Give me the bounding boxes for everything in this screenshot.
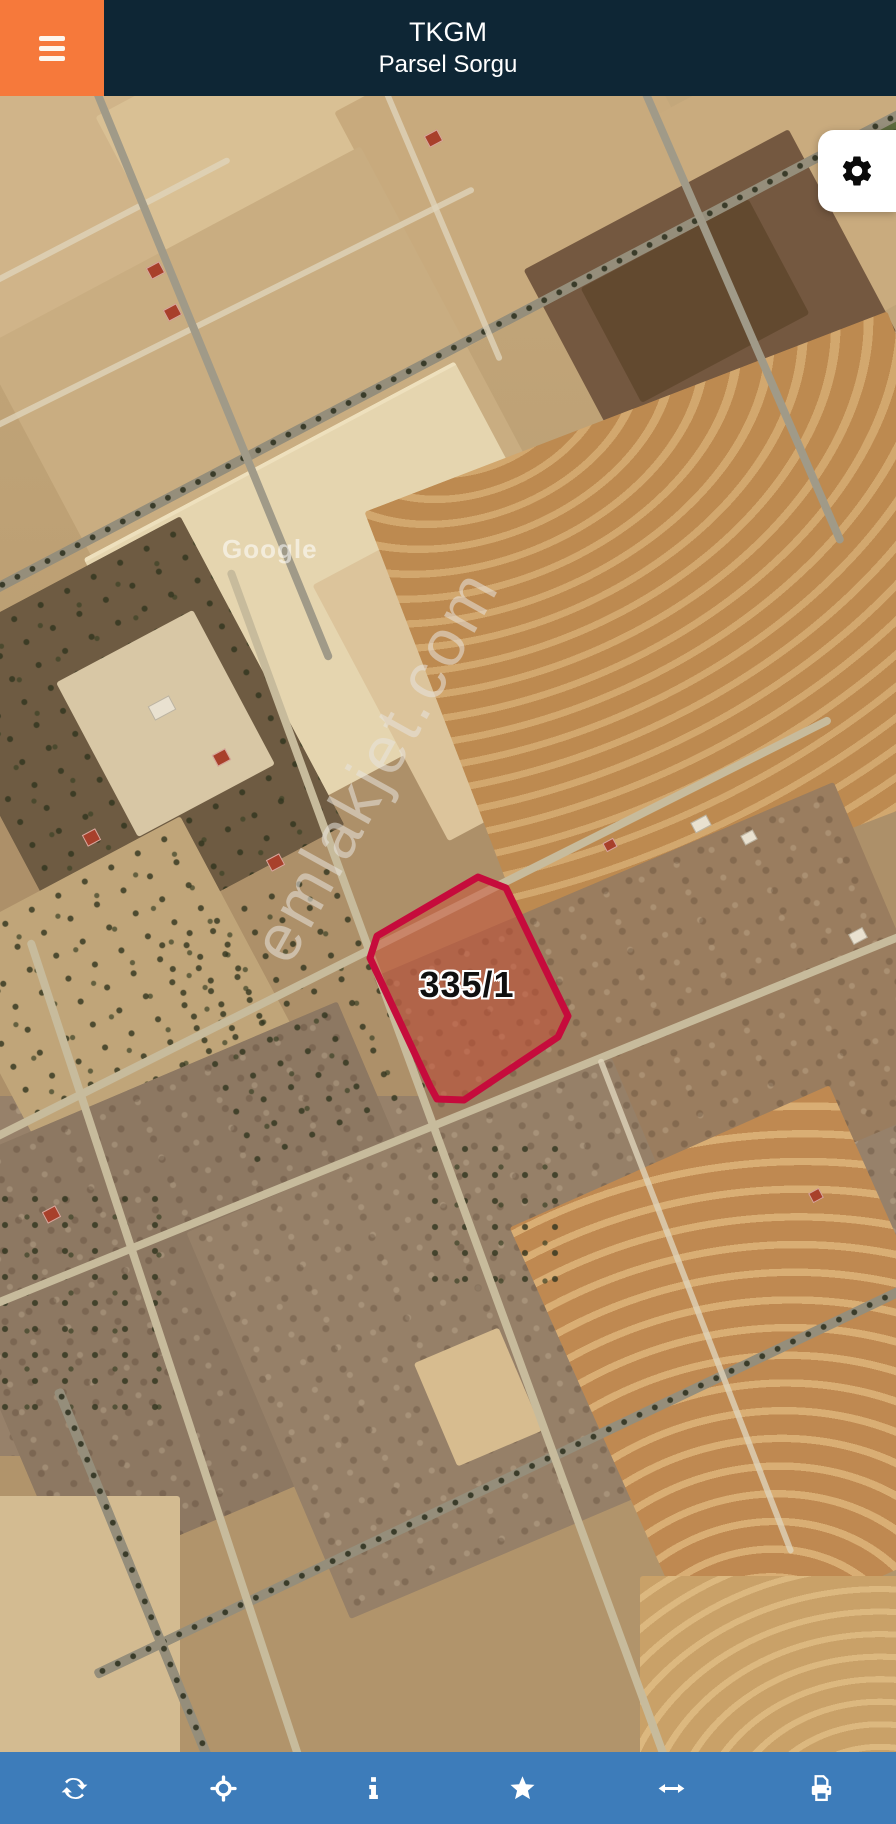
app-header: TKGM Parsel Sorgu bbox=[0, 0, 896, 96]
favorite-button[interactable] bbox=[448, 1752, 597, 1824]
app-subtitle: Parsel Sorgu bbox=[379, 49, 518, 80]
gear-icon bbox=[839, 153, 875, 189]
header-titles: TKGM Parsel Sorgu bbox=[104, 0, 792, 96]
settings-button[interactable] bbox=[818, 130, 896, 212]
bottom-toolbar bbox=[0, 1752, 896, 1824]
info-icon bbox=[358, 1773, 389, 1804]
extent-button[interactable] bbox=[597, 1752, 746, 1824]
hamburger-icon bbox=[39, 36, 65, 61]
refresh-icon bbox=[59, 1773, 90, 1804]
app-title: TKGM bbox=[409, 16, 487, 48]
menu-button[interactable] bbox=[0, 0, 104, 96]
crosshair-icon bbox=[208, 1773, 239, 1804]
info-button[interactable] bbox=[299, 1752, 448, 1824]
parcel-overlay bbox=[0, 96, 896, 1752]
horizontal-arrows-icon bbox=[656, 1773, 687, 1804]
locate-button[interactable] bbox=[149, 1752, 298, 1824]
star-icon bbox=[507, 1773, 538, 1804]
print-button[interactable] bbox=[747, 1752, 896, 1824]
app-screen: Google 335/1 emlakjet.com TKGM Parsel So… bbox=[0, 0, 896, 1824]
map-canvas[interactable]: Google 335/1 emlakjet.com bbox=[0, 96, 896, 1752]
printer-icon bbox=[806, 1773, 837, 1804]
refresh-button[interactable] bbox=[0, 1752, 149, 1824]
parcel-label: 335/1 bbox=[419, 964, 514, 1006]
